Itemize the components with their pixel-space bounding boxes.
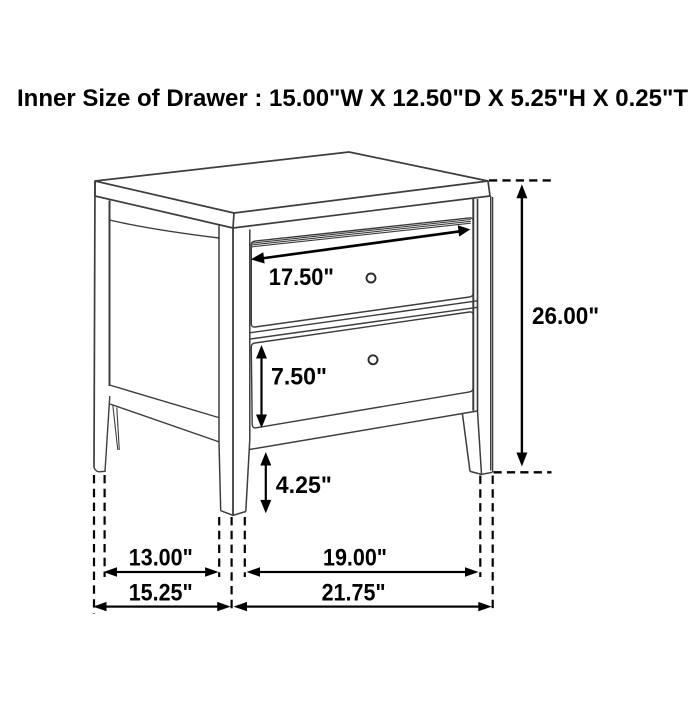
svg-text:7.50": 7.50": [271, 363, 327, 390]
svg-text:26.00": 26.00": [532, 303, 599, 330]
svg-text:Inner Size of Drawer : 15.00"W: Inner Size of Drawer : 15.00"W X 12.50"D…: [17, 85, 688, 112]
svg-text:13.00": 13.00": [129, 544, 193, 571]
svg-text:17.50": 17.50": [269, 264, 334, 291]
svg-text:4.25": 4.25": [276, 472, 332, 499]
svg-text:19.00": 19.00": [323, 544, 387, 571]
svg-text:15.25": 15.25": [129, 580, 193, 607]
svg-text:21.75": 21.75": [322, 580, 386, 607]
